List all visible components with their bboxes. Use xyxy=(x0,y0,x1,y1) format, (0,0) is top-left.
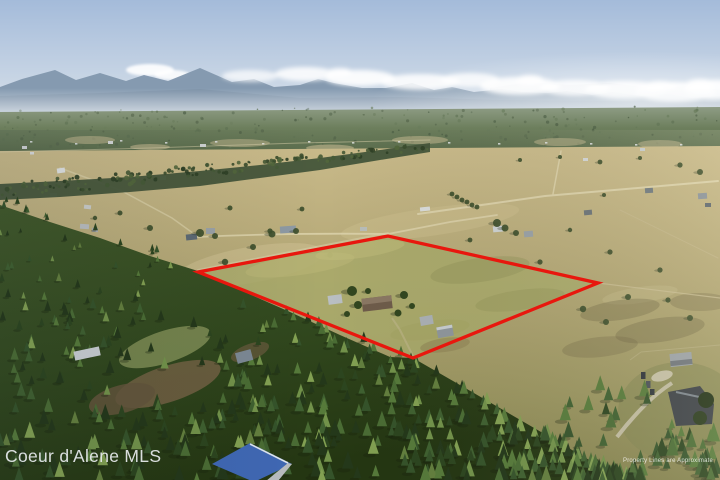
boundary-disclaimer: Property Lines are Approximate xyxy=(623,458,713,464)
mls-watermark: Coeur d'Alene MLS xyxy=(5,446,161,467)
listing-aerial-photo: Coeur d'Alene MLS Property Lines are App… xyxy=(0,0,720,480)
aerial-photo-scene xyxy=(0,0,720,480)
light-overlay xyxy=(0,130,720,480)
